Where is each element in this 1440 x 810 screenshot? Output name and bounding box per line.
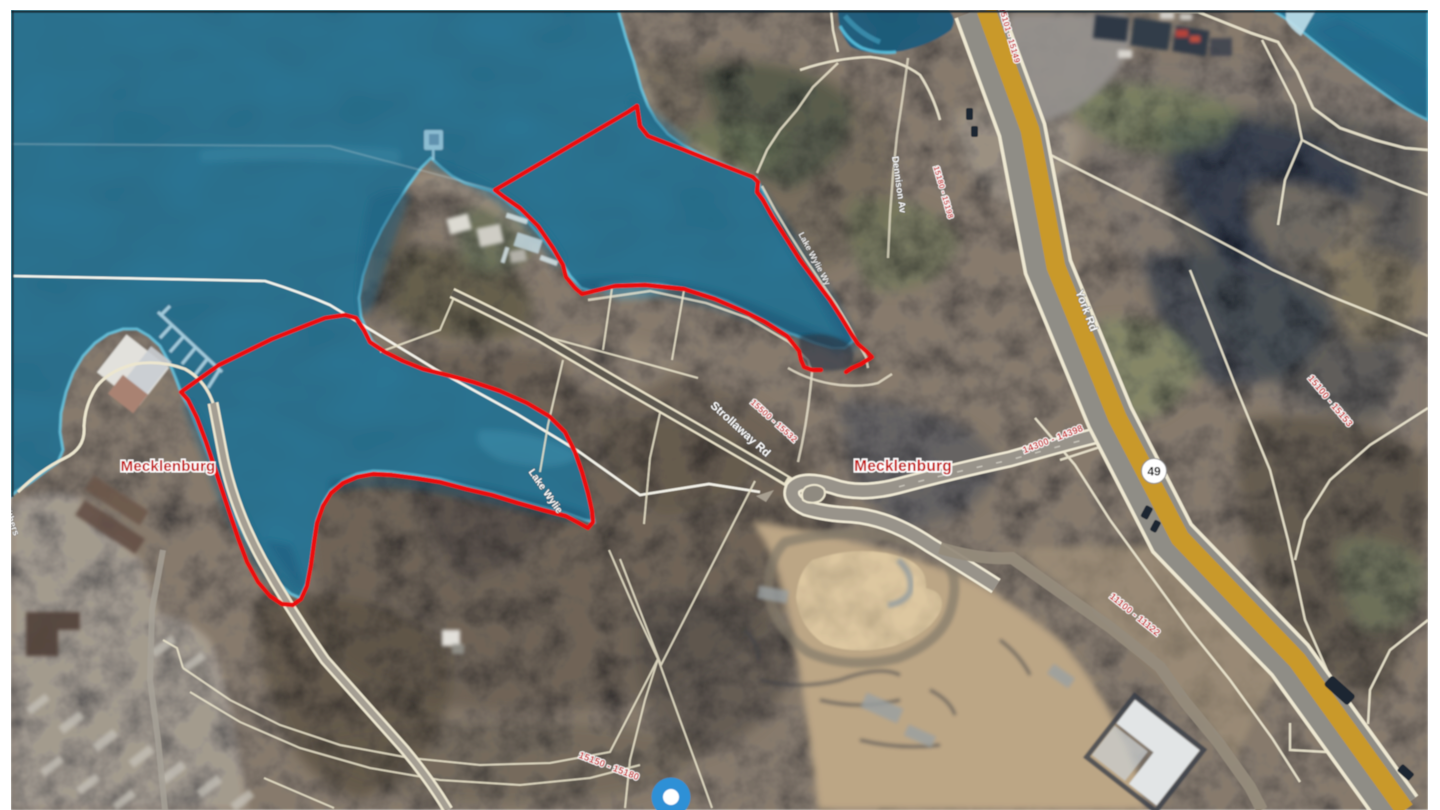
svg-text:49: 49 [1147,465,1161,479]
svg-text:Mecklenburg: Mecklenburg [121,458,216,475]
svg-text:Mecklenburg: Mecklenburg [854,458,952,475]
